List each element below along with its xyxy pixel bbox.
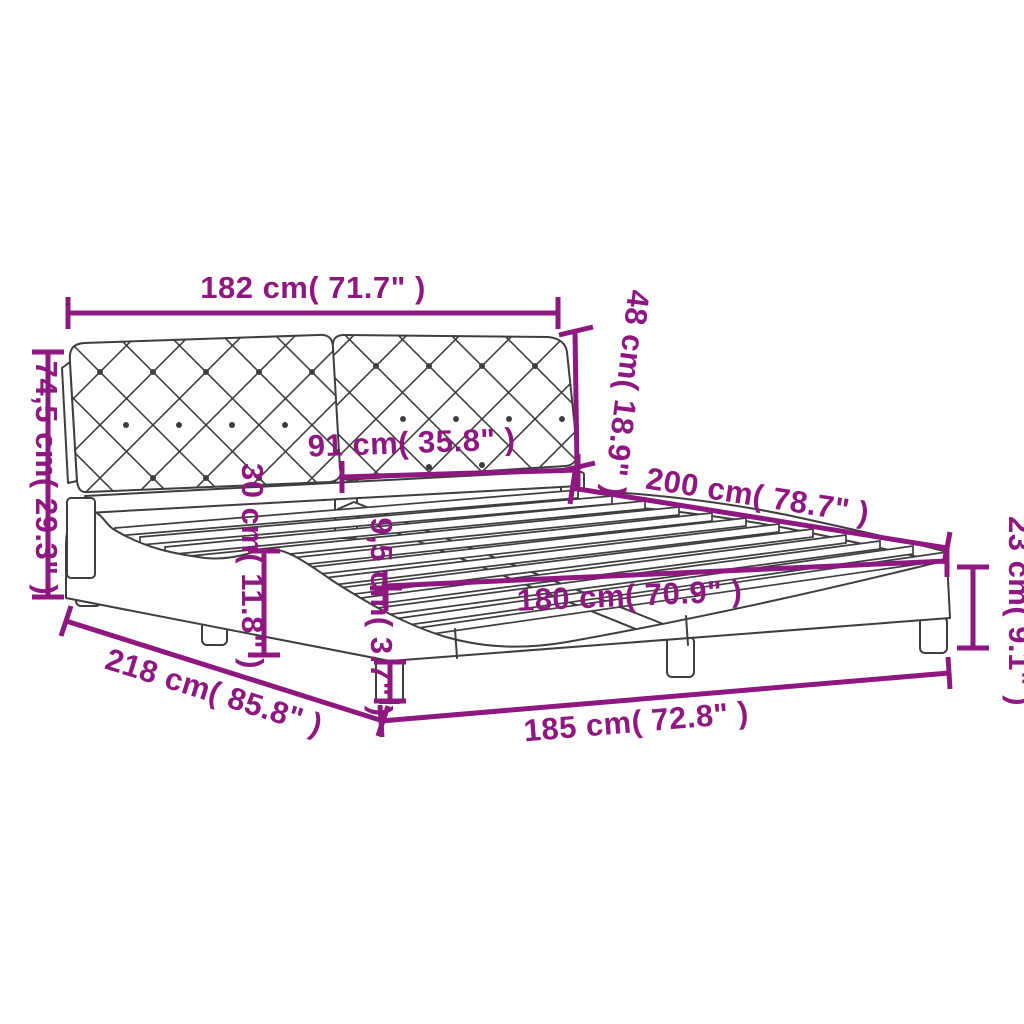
dim-label-185: 185 cm( 72.8" ) [522,695,750,749]
dim-label-74-5: 74,5 cm( 29.3" ) [29,361,64,596]
dim-headboard-width: 182 cm( 71.7" ) [68,270,558,329]
dim-label-9-5: 9,5 cm( 3.7" ) [364,517,399,716]
dim-slat-frame-height: 9,5 cm( 3.7" ) [364,517,406,716]
dim-label-23: 23 cm( 9.1" ) [1002,516,1024,706]
dim-total-width: 185 cm( 72.8" ) [380,657,950,748]
bed-dimension-diagram: 182 cm( 71.7" ) 48 cm( 18.9" ) 74,5 cm( … [0,0,1024,1024]
dim-headboard-total-height: 74,5 cm( 29.3" ) [29,352,64,597]
diagram-canvas: 182 cm( 71.7" ) 48 cm( 18.9" ) 74,5 cm( … [0,0,1024,1024]
leg [667,637,694,677]
dim-label-182: 182 cm( 71.7" ) [200,270,426,305]
leg [920,617,947,653]
dim-headboard-panel-height: 48 cm( 18.9" ) [559,288,656,499]
dim-label-30: 30 cm( 11.8" ) [235,463,270,669]
dim-frame-side-height: 23 cm( 9.1" ) [957,516,1024,706]
headboard-post-left [67,498,95,578]
dim-label-91: 91 cm( 35.8" ) [307,421,516,463]
